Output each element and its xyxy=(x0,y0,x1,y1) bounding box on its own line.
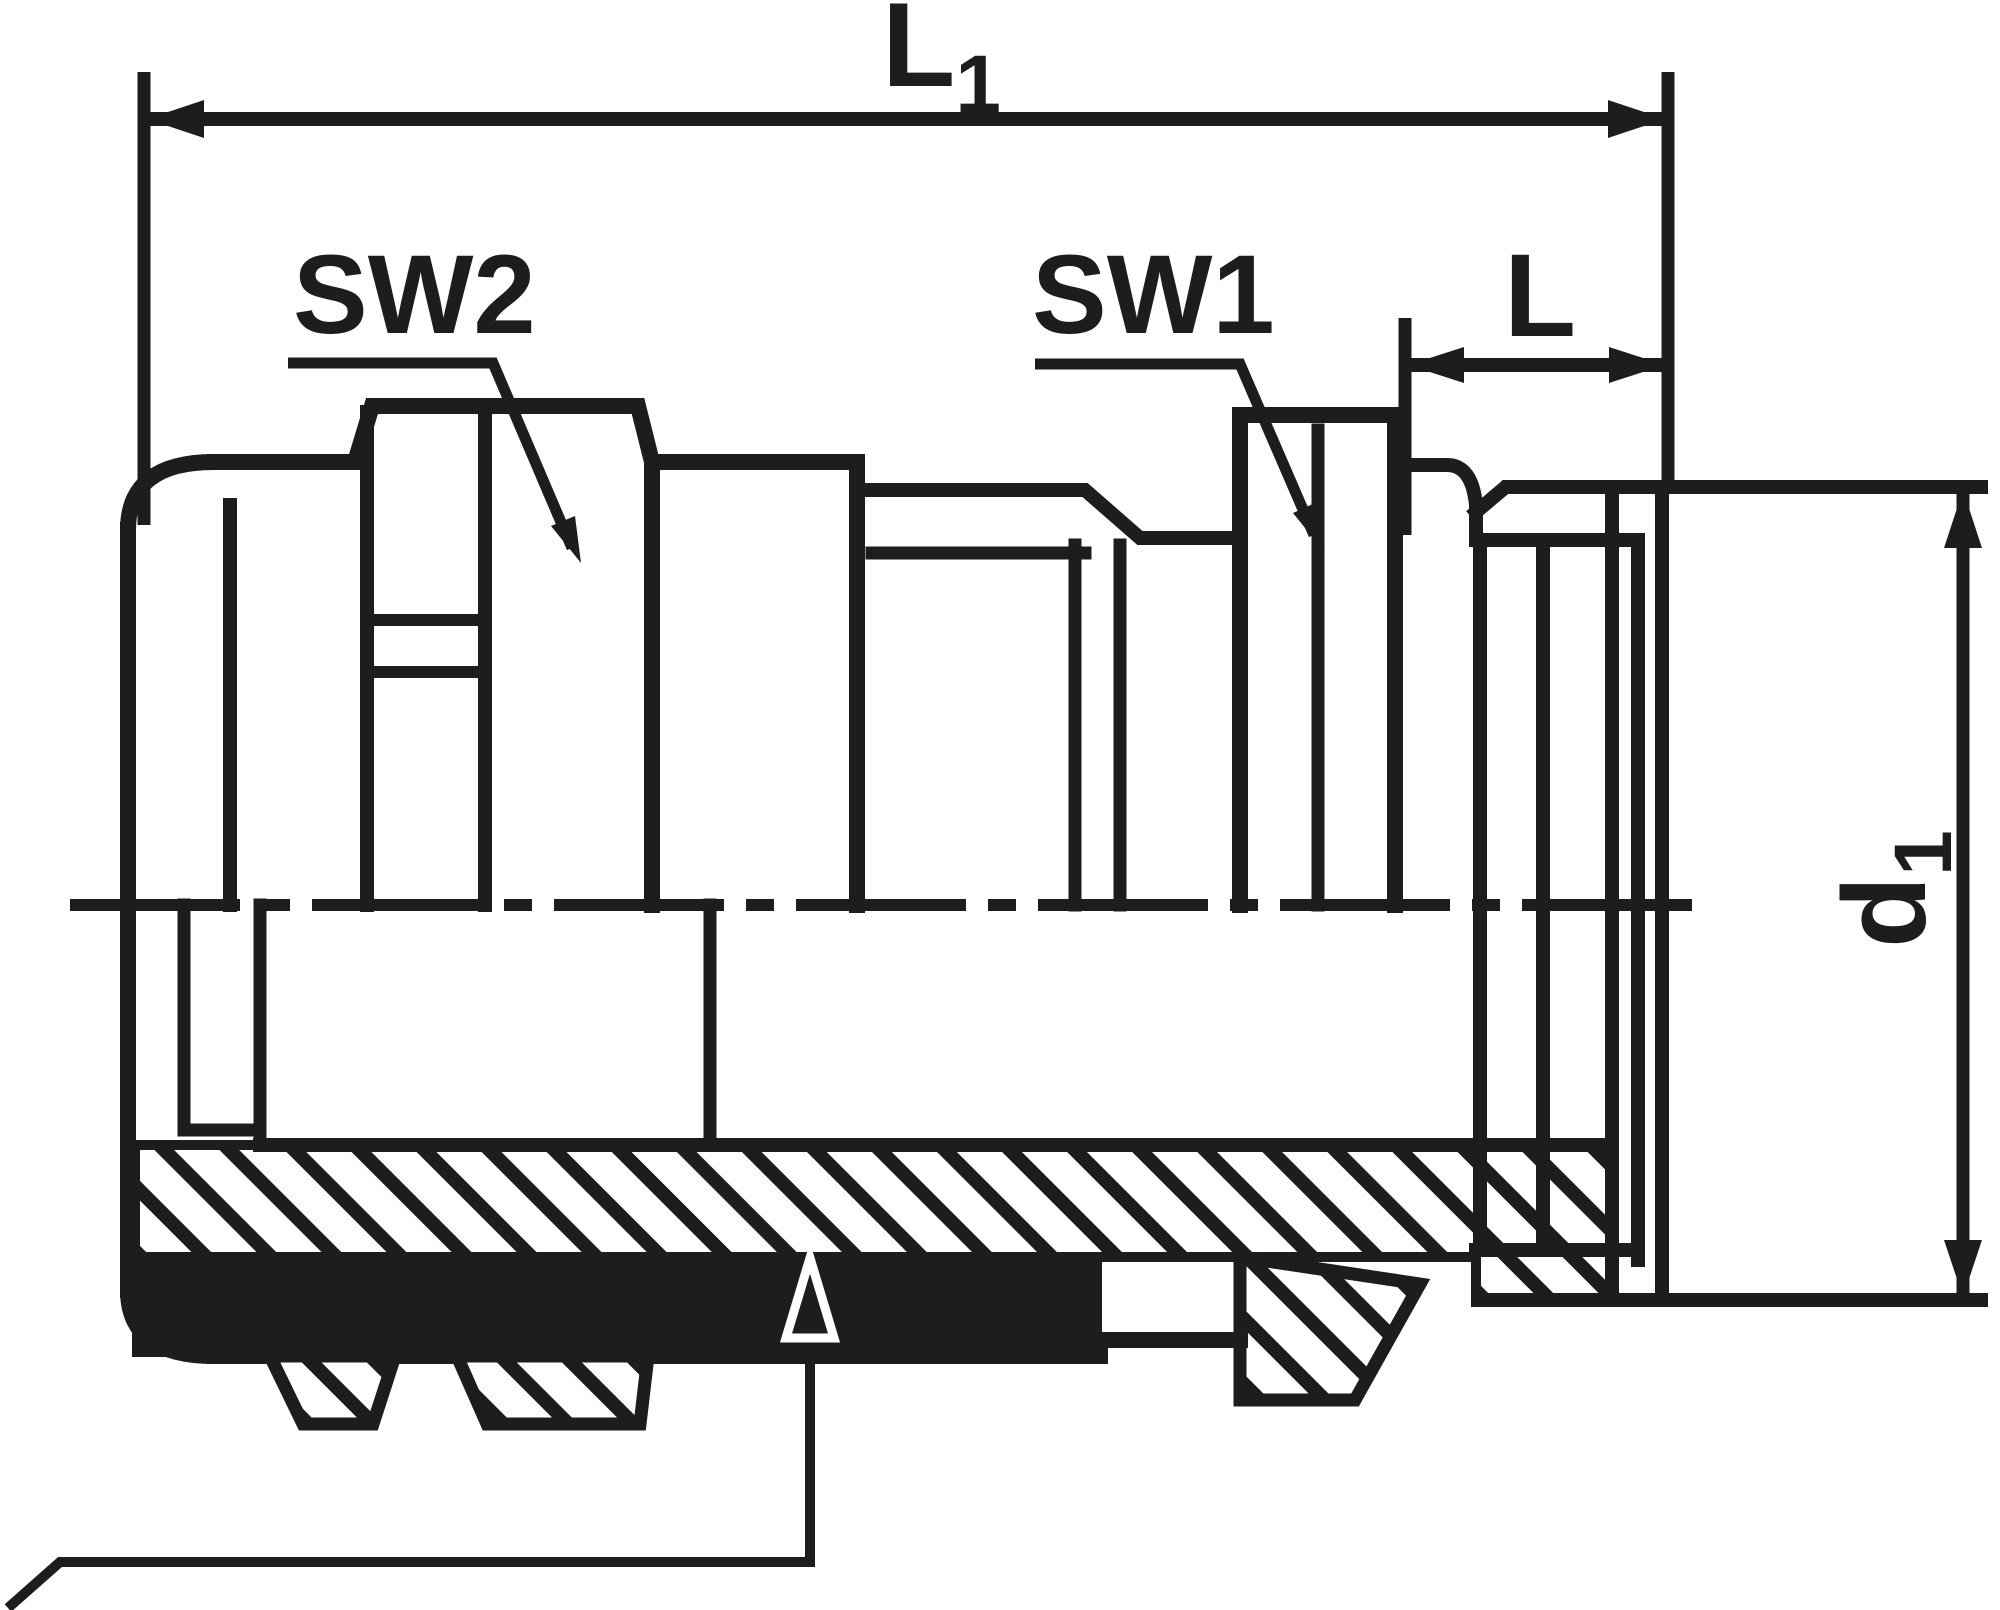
drawing-canvas: L1 L d1 SW2 SW1 xyxy=(0,0,2000,1610)
svg-text:d1: d1 xyxy=(1819,830,1969,948)
hatch-bump-left xyxy=(270,1356,395,1424)
section-lower-half xyxy=(132,1145,1612,1424)
d1-arrow-down-icon xyxy=(1944,1240,1982,1297)
label-l: L xyxy=(1504,230,1576,362)
label-sw2: SW2 xyxy=(293,232,536,357)
leader-sw2: SW2 xyxy=(288,232,581,563)
sw2-facet-lines xyxy=(230,412,485,905)
leader-sw1: SW1 xyxy=(1032,232,1322,549)
d1-arrow-up-icon xyxy=(1944,490,1982,548)
triangle-leader-line xyxy=(8,1356,810,1608)
label-d1: d1 xyxy=(1819,830,1969,948)
hatch-bump-right xyxy=(457,1356,648,1424)
l-arrow-left-icon xyxy=(1408,347,1464,383)
l1-arrow-right-icon xyxy=(1608,100,1665,138)
label-sw1: SW1 xyxy=(1032,232,1275,357)
hatch-band-main xyxy=(135,1145,1610,1257)
technical-drawing: L1 L d1 SW2 SW1 xyxy=(0,0,2000,1610)
sw2-chamfer-ticks xyxy=(378,620,478,672)
l1-arrow-left-icon xyxy=(147,100,204,138)
mid-top-edge xyxy=(857,490,1240,538)
thread-shoulder xyxy=(1398,465,1502,540)
sw1-leader-line xyxy=(1035,364,1314,535)
hatch-sw1-bottom xyxy=(1240,1257,1420,1400)
solid-band xyxy=(132,1257,1102,1357)
l-arrow-right-icon xyxy=(1609,347,1665,383)
end-face-lines xyxy=(1612,492,1662,1298)
mid-facet-lines xyxy=(1075,545,1120,905)
bore-internals xyxy=(184,905,710,1145)
label-l1: L1 xyxy=(882,0,1001,130)
